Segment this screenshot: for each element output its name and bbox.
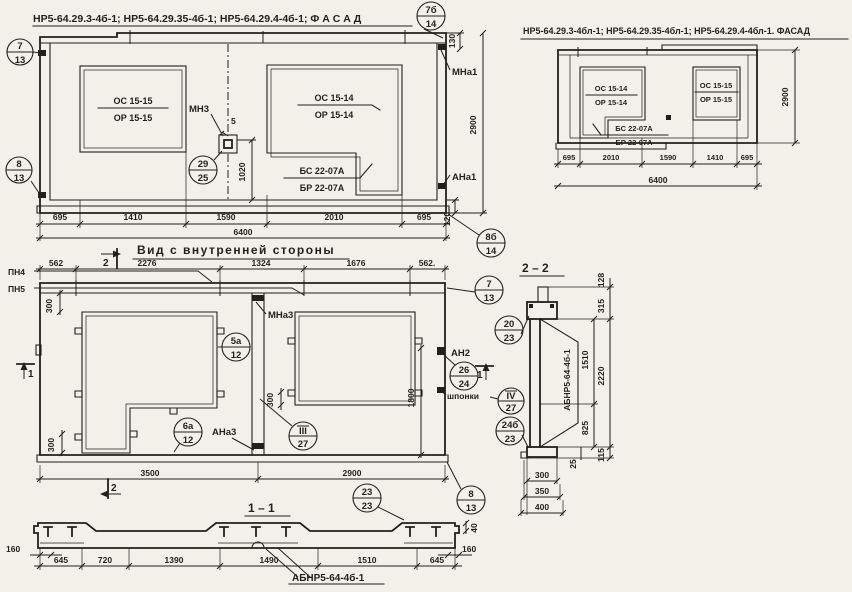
callout-top: 26 [459,365,470,376]
callout-top: 24б [502,420,519,431]
dim-400: 400 [535,502,549,512]
callout-bottom: 13 [15,55,26,66]
dim-825: 825 [580,421,590,435]
dim-300b: 300 [46,438,56,452]
dim-315: 315 [596,299,606,313]
callout-7-13-inner: 7 13 [447,276,503,304]
callout-bottom: 27 [506,403,517,414]
dim-2900: 2900 [343,468,362,478]
callout-bottom: 23 [362,501,373,512]
section-arrow-head [483,363,490,371]
window1-mark-top: ОС 15-15 [113,96,152,106]
callout-III-27: III 27 [260,399,317,450]
dim-2276: 2276 [138,258,157,268]
leader-line [211,114,223,136]
panel-outline [40,283,445,455]
profile-outline [34,523,459,548]
drawing-sheet: НР5-64.29.3-4б-1; НР5-64.29.35-4б-1; НР5… [0,0,852,592]
section-1-1-view: 1 – 1 160 160 40 645 720 1390 1490 1510 … [6,501,479,584]
section-2-marker-top: 2 [101,249,121,269]
callout-top: IV [507,391,517,402]
window-opening-1 [80,66,186,152]
dim-1324: 1324 [252,258,271,268]
window-anchor-marks [75,328,422,440]
web [530,319,540,447]
balcony-mark-bottom: БР 22-07А [300,183,345,193]
pn5-label: ПН5 [8,284,25,294]
dim-2010: 2010 [603,153,620,162]
dim-1490: 1490 [260,555,279,565]
leader-line [447,288,475,292]
callout-top: 8 [16,159,21,170]
callout-29-25: 29 25 [189,151,222,184]
mn3-label: МН3 [189,104,209,115]
dim-1800: 1800 [406,388,416,407]
section22-title: 2 – 2 [522,261,549,275]
inner-view-title: Вид с внутренней стороны [137,243,335,257]
callout-bottom: 23 [504,333,515,344]
callout-5a-12: 5а 12 [218,333,250,361]
window-opening-2-inner [696,70,737,117]
window-opening-2 [295,312,415,405]
window-opening-2-inner [299,316,411,401]
callout-top: 6а [183,421,194,432]
section-arrow-head [100,491,108,498]
extension-lines [40,265,445,280]
window1-mark-bottom: ОР 15-14 [595,98,628,107]
dim-562: 562 [49,258,63,268]
top-cap [538,287,548,302]
dim-5: 5 [231,116,236,126]
callout-20-23: 20 23 [495,316,529,344]
facade-mirror-view: НР5-64.29.3-4бл-1; НР5-64.29.35-4бл-1; Н… [521,26,848,190]
callout-top: 7 [17,41,22,52]
section-number: 2 [103,258,109,269]
dim-2900-line [447,30,487,216]
joint-divider [252,293,264,455]
callout-bottom: 13 [484,293,495,304]
callout-7-13: 7 13 [7,39,40,66]
dim-562b: 562. [419,258,436,268]
leader-line [214,151,222,160]
dim-1676: 1676 [347,258,366,268]
callout-bottom: 12 [231,350,242,361]
panel-bottom-band [37,206,449,213]
balcony-mark-top: БС 22-07А [300,166,345,176]
section-number: 1 [28,369,34,380]
dim-6400: 6400 [649,175,668,185]
dim-300c-line [278,388,284,410]
balcony-mark-top: БС 22-07А [615,124,653,133]
callout-bottom: 24 [459,379,470,390]
leader-line [490,397,498,399]
dim-40: 40 [469,523,479,533]
callout-bottom: 27 [298,439,309,450]
key-embed-mark [437,387,445,393]
window2-mark-top: ОС 15-14 [314,93,353,103]
dim-720: 720 [98,555,112,565]
section11-title: 1 – 1 [248,501,275,515]
callout-top: 7б [425,5,436,16]
shponki-label: шпонки [447,391,479,401]
bottom-flange [527,447,557,457]
leader-line [447,462,461,489]
rib-contour [540,319,578,447]
embed-plate-mark [38,192,46,198]
dim-645: 645 [54,555,68,565]
dim-3500: 3500 [141,468,160,478]
abnr-label: АБНР5-64-4б-1 [292,572,365,584]
leader-line [378,507,404,520]
dim-130: 130 [447,34,457,48]
callout-top: 23 [362,487,373,498]
dim-350: 350 [535,486,549,496]
panel-outline [40,33,446,213]
callout-top: 20 [504,319,515,330]
dim-695b: 695 [741,153,754,162]
leader-line [174,443,180,452]
window1-mark-bottom: ОР 15-15 [114,113,153,123]
ana3-label: АНа3 [212,427,236,438]
dim-1510: 1510 [358,555,377,565]
joint-bottom-plate [252,443,264,449]
section-1-marker-left: 1 [17,362,34,380]
callout-bottom: 23 [505,434,516,445]
callout-8b-14: 8б 14 [448,214,505,257]
ana1-label: АНа1 [452,172,477,183]
flange-anchor [529,304,533,308]
section-1-marker-right: 1 [476,363,493,381]
abnr-label-vertical: АБНР5-64-4б-1 [562,349,572,411]
dim-300b-line [59,430,65,456]
blueprint-svg: НР5-64.29.3-4б-1; НР5-64.29.35-4б-1; НР5… [0,0,852,592]
window1-mark-top: ОС 15-14 [595,84,628,93]
callout-8-13: 8 13 [6,157,39,193]
callout-top: 8б [485,232,496,243]
callout-26-24: 26 24 [444,355,478,390]
callout-24b-23: 24б 23 [496,417,528,447]
an2-embed-mark [437,347,445,355]
leader-line [260,399,292,426]
extension-lines [40,462,445,483]
embed-plate-mark [666,115,671,120]
facade-main-title: НР5-64.29.3-4б-1; НР5-64.29.35-4б-1; НР5… [33,13,362,25]
embed-plate-mark [438,44,446,50]
section-2-marker-bottom: 2 [100,479,121,498]
dim-695b: 695 [417,212,431,222]
pn4-label: ПН4 [8,267,25,277]
facade-mirror-title: НР5-64.29.3-4бл-1; НР5-64.29.35-4бл-1; Н… [523,26,811,36]
callout-6a-12: 6а 12 [174,418,202,452]
dim-2900-line [792,47,798,146]
dim-1590: 1590 [217,212,236,222]
dim-695: 695 [563,153,576,162]
window2-mark-bottom: ОР 15-15 [700,95,732,104]
callout-top: 5а [231,336,242,347]
dim-160-left: 160 [6,544,20,554]
dim-160-right: 160 [462,544,476,554]
callout-bottom: 14 [486,246,497,257]
callout-bottom: 13 [466,503,477,514]
mna3-label: МНа3 [268,310,293,321]
callout-bottom: 14 [426,19,437,30]
dim-300a: 300 [44,299,54,313]
callout-bottom: 13 [14,173,25,184]
dim-2900: 2900 [468,115,478,134]
leader-line [31,181,39,193]
dim-1410: 1410 [124,212,143,222]
window-opening-1-inner [84,70,182,148]
dim-line-outer [607,278,613,461]
dim-645b: 645 [430,555,444,565]
callout-8-13-inner: 8 13 [447,462,485,514]
section-number: 2 [111,483,117,494]
flange-anchor [550,304,554,308]
dim-300: 300 [535,470,549,480]
dim-115: 115 [596,448,606,462]
dim-2010: 2010 [325,212,344,222]
leader-line [448,214,479,235]
mn3-anchor-core [224,140,232,148]
window-opening-1-inner [86,316,213,449]
dim-25: 25 [568,459,578,469]
callout-top: 8 [468,489,473,500]
window2-mark-top: ОС 15-15 [700,81,733,90]
callout-top: III [299,426,307,437]
leader-line [232,438,254,450]
an2-label: АН2 [451,348,470,359]
window-opening-2 [693,67,740,120]
callout-bottom: 25 [198,173,209,184]
dim-6400: 6400 [234,227,253,237]
panel-joint-ticks [578,47,647,57]
inner-view: Вид с внутренней стороны ПН4 ПН5 562 227… [8,243,524,520]
joint-top-plate [252,295,264,301]
dim-1020: 1020 [237,162,247,181]
dim-300a-line [57,290,63,315]
dim-695: 695 [53,212,67,222]
dim-2900: 2900 [780,87,790,106]
dim-128: 128 [596,273,606,287]
dim-1390: 1390 [165,555,184,565]
mn3-anchor-detail [219,135,237,153]
dim-1800-line [418,345,424,458]
dim-2220: 2220 [596,366,606,385]
facade-main-view: НР5-64.29.3-4б-1; НР5-64.29.35-4б-1; НР5… [6,2,505,257]
dim-1410: 1410 [707,153,724,162]
callout-bottom: 12 [183,435,194,446]
dim-1590: 1590 [660,153,677,162]
callout-23-23: 23 23 [353,484,404,520]
panel-bottom-band [37,455,448,462]
balcony-mark-bottom: БР 22-07А [615,138,653,147]
mna1-label: МНа1 [452,67,478,78]
callout-top: 7 [486,279,491,290]
callout-IV-27: IV 27 [490,388,524,414]
extension-lines [757,50,800,143]
dim-1510: 1510 [580,350,590,369]
window2-mark-bottom: ОР 15-14 [315,110,354,120]
callout-top: 29 [198,159,209,170]
